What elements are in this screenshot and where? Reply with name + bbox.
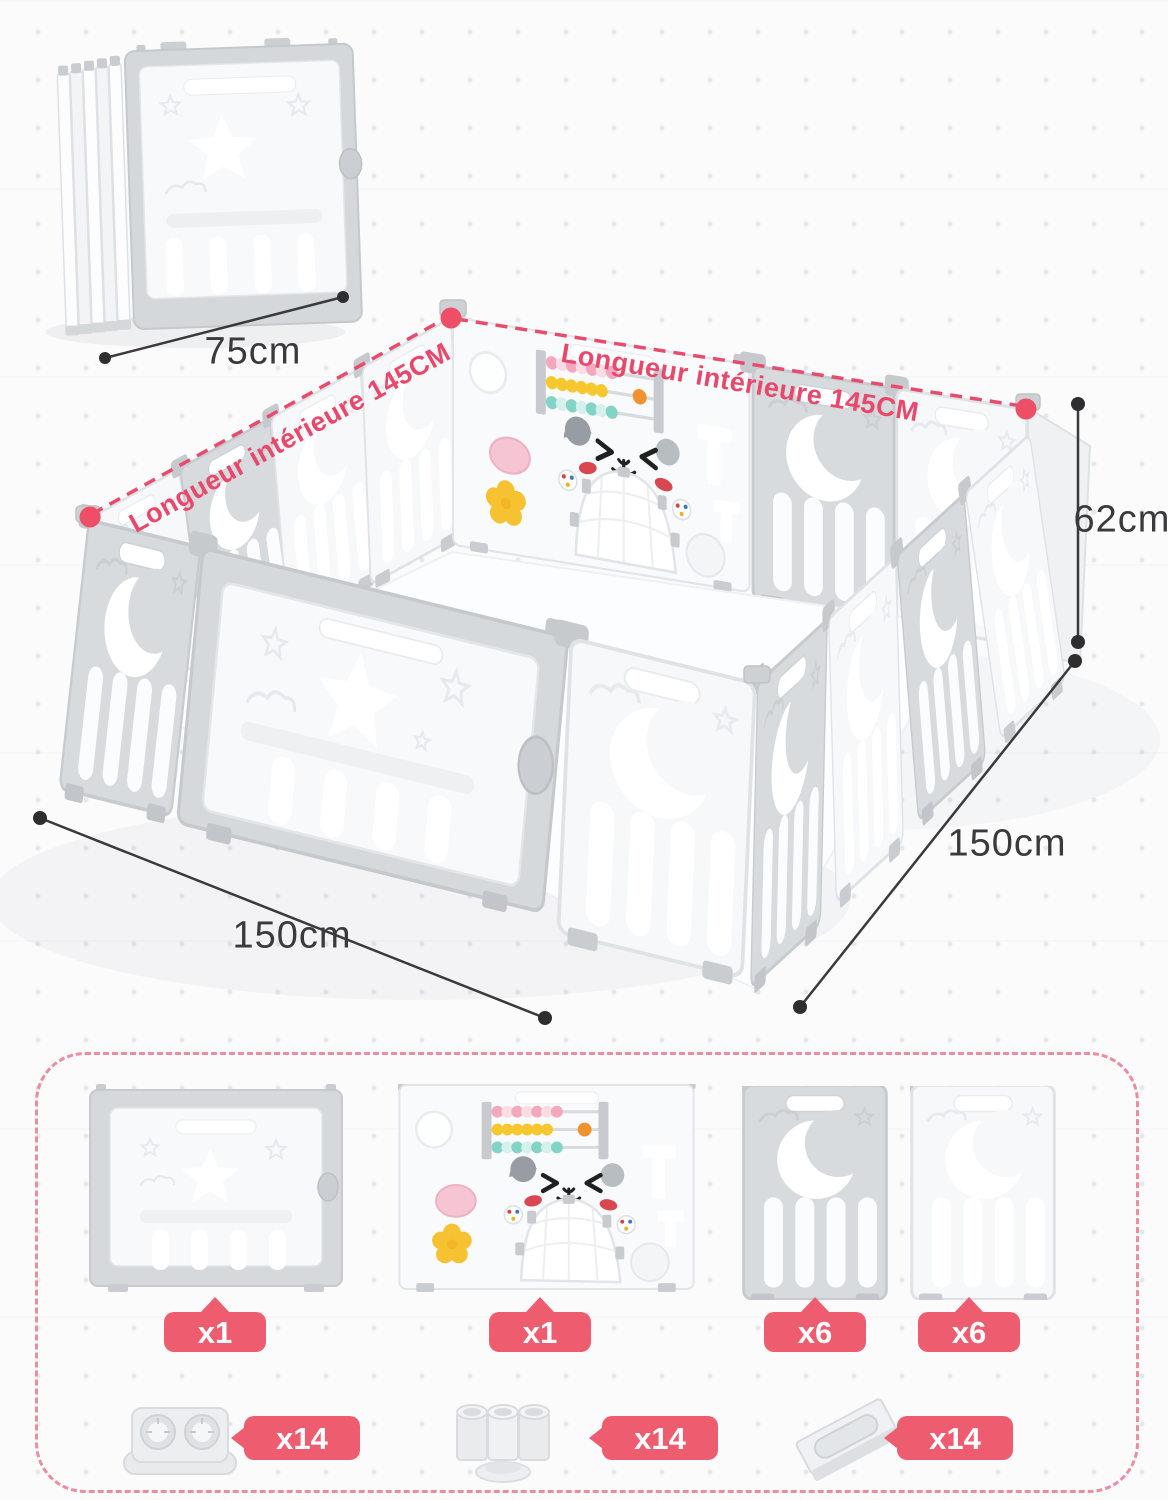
- qty-badge-gray-moon-panel: x6: [764, 1312, 866, 1352]
- folded-playpen: [55, 35, 367, 335]
- product-dimension-infographic: 75cm Longueur intérieure 145CM Longueur …: [0, 0, 1168, 1500]
- white-moon-panel-thumbnail: [910, 1086, 1056, 1300]
- qty-badge-foot-connector: x14: [244, 1416, 360, 1460]
- folded-width-label: 75cm: [205, 331, 302, 374]
- tube-connector-thumbnail: [448, 1394, 558, 1486]
- front-width-label: 150cm: [232, 915, 351, 958]
- qty-badge-tube-connector: x14: [602, 1416, 718, 1460]
- qty-badge-activity-panel: x1: [489, 1312, 591, 1352]
- side-depth-label: 150cm: [947, 823, 1066, 866]
- door-panel-thumbnail: [88, 1082, 344, 1294]
- playpen-illustration: [0, 0, 1168, 1040]
- playpen-panel-moonG: [48, 503, 202, 825]
- qty-badge-door-panel: x1: [164, 1312, 266, 1352]
- height-label: 62cm: [1074, 499, 1168, 542]
- qty-badge-flat-bracket: x14: [897, 1416, 1013, 1460]
- qty-badge-white-moon-panel: x6: [918, 1312, 1020, 1352]
- foot-connector-thumbnail: [120, 1398, 240, 1480]
- gray-moon-panel-thumbnail: [742, 1086, 888, 1300]
- activity-panel-thumbnail: [398, 1084, 696, 1292]
